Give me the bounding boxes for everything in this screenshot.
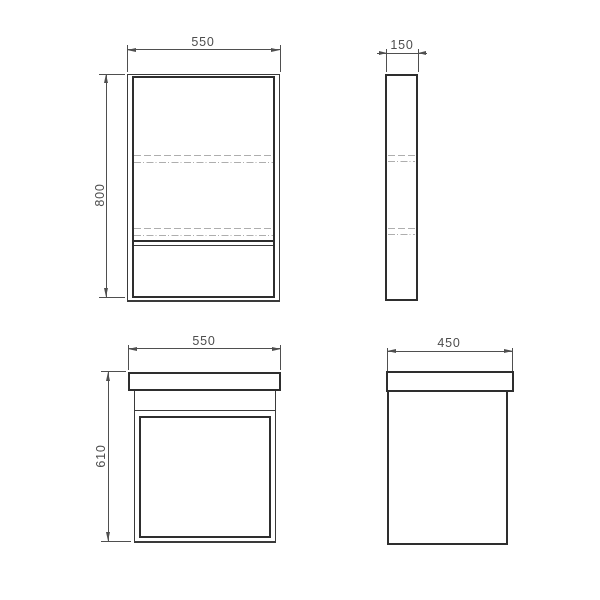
hidden-shelf-line [388,155,415,156]
dim-label-vanity-width: 550 [192,334,215,348]
dimension-line [387,351,513,352]
vanity-side-body [387,392,508,545]
dim-arrow-up [104,74,108,83]
technical-drawing-canvas: 550 800 150 550 [0,0,600,600]
dim-arrow-down [104,288,108,297]
mirror-side-outline [385,74,418,301]
hidden-shelf-line [388,161,415,162]
hidden-shelf-line [388,234,415,235]
dimension-line [128,348,281,349]
extension-line [99,297,125,298]
cabinet-bottom-shelf-edge [133,296,274,298]
dim-arrow-right-tip [379,51,387,55]
mirror-door-panel [132,76,276,298]
dim-arrow-left [127,48,136,52]
dim-arrow-right [504,349,513,353]
dim-label-mirror-width: 550 [191,35,214,49]
extension-line [101,371,126,372]
dim-label-vanity-depth: 450 [437,336,460,350]
hidden-shelf-line [134,228,273,229]
hidden-shelf-line [388,228,415,229]
hidden-shelf-line [134,162,273,163]
dim-arrow-left [128,347,137,351]
dim-arrow-right [271,48,280,52]
extension-line [99,74,125,75]
dim-label-mirror-height: 800 [93,183,107,206]
open-shelf-inner-edge [134,245,273,246]
dim-label-mirror-depth: 150 [390,38,413,52]
vanity-door-panel [139,416,271,539]
countertop-front [128,372,281,392]
dim-label-vanity-height: 610 [94,444,108,467]
hidden-shelf-line [134,155,273,156]
dim-arrow-up [106,372,110,381]
open-shelf-top-edge [134,240,273,242]
dim-arrow-left-tip [418,51,426,55]
extension-line [101,541,131,542]
dim-arrow-right [272,347,281,351]
hidden-shelf-line [134,235,273,236]
dimension-line [127,49,280,50]
dim-arrow-down [106,532,110,541]
countertop-side [386,371,514,392]
apron-rail-line [135,410,275,411]
dim-arrow-left [387,349,396,353]
